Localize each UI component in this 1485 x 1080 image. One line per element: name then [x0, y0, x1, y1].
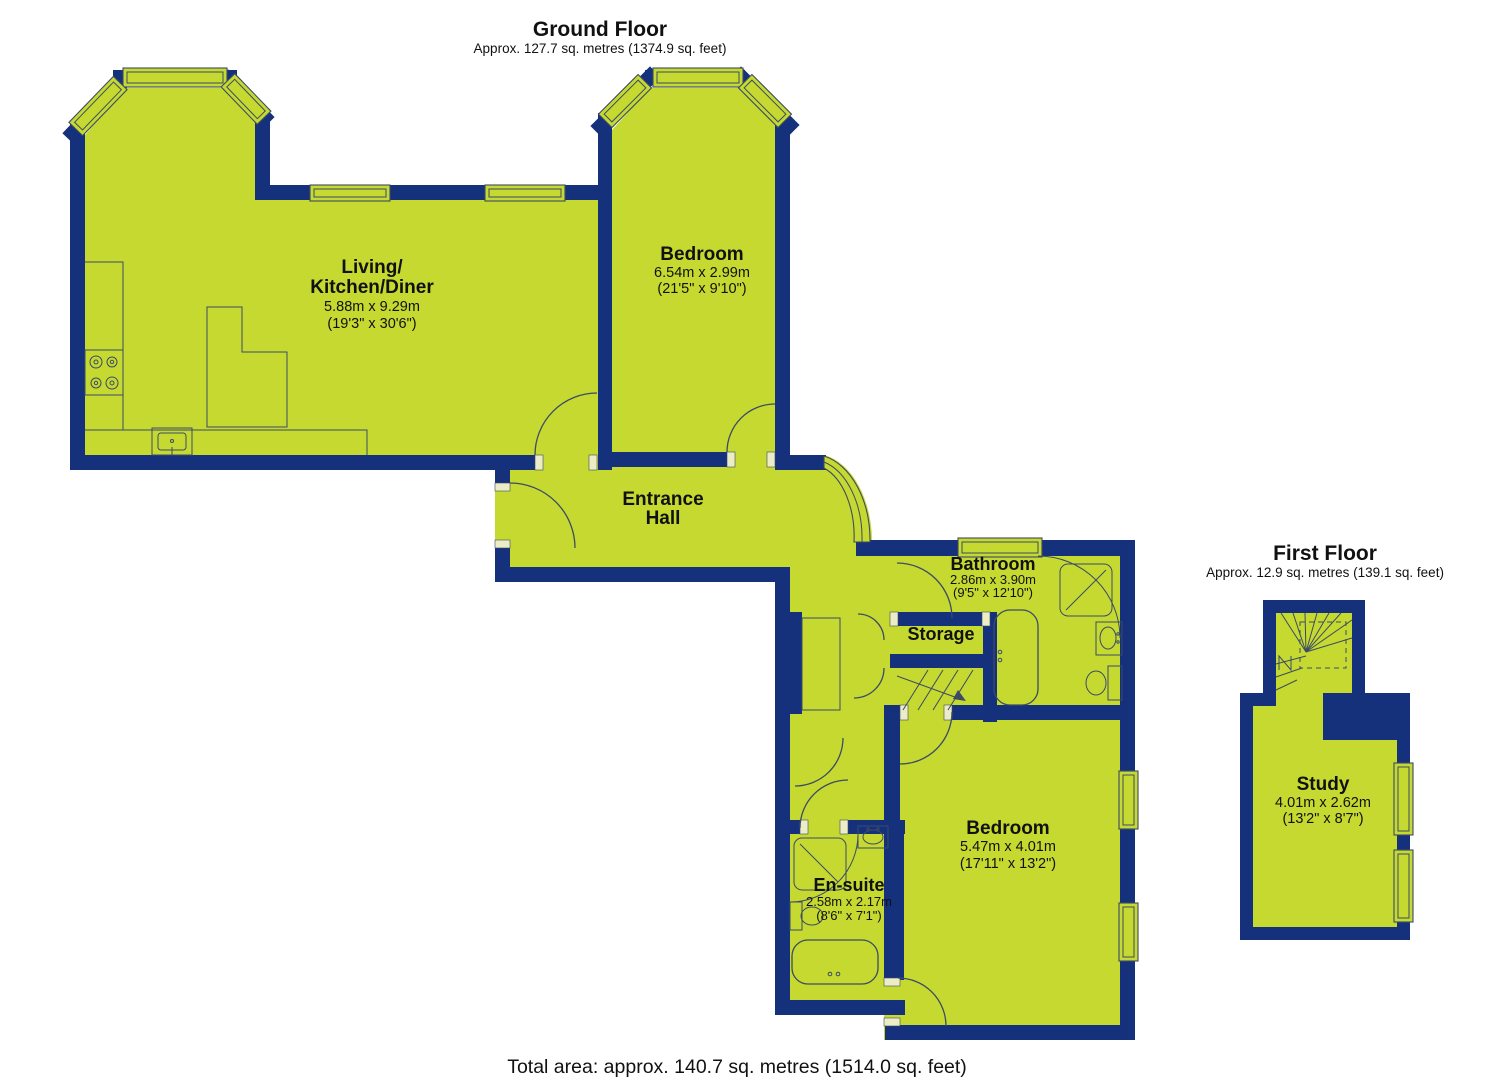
room-dims-ensuite-metric: 2.58m x 2.17m: [806, 894, 892, 909]
window-icon: [1119, 903, 1138, 961]
room-label-bathroom: Bathroom: [951, 554, 1036, 574]
ground-floor-subtitle: Approx. 127.7 sq. metres (1374.9 sq. fee…: [474, 41, 727, 56]
window-icon: [1394, 850, 1413, 922]
room-bedroom-bottom-floor: [884, 705, 1135, 1040]
floorplan-drawing: Ground Floor Approx. 127.7 sq. metres (1…: [0, 0, 1485, 1080]
ground-floor-title: Ground Floor: [533, 18, 667, 41]
room-dims-study-metric: 4.01m x 2.62m: [1275, 795, 1371, 811]
room-label-study: Study: [1297, 774, 1350, 795]
room-dims-bedroom-bottom-imperial: (17'11" x 13'2"): [960, 856, 1056, 872]
room-dims-study-imperial: (13'2" x 8'7"): [1282, 811, 1363, 827]
room-label-living-1: Living/: [341, 257, 403, 278]
room-dims-living-metric: 5.88m x 9.29m: [324, 299, 420, 315]
room-label-bedroom-top: Bedroom: [660, 244, 743, 265]
room-dims-bathroom-imperial: (9'5" x 12'10"): [953, 585, 1033, 600]
window-icon: [123, 68, 227, 87]
room-dims-ensuite-imperial: (8'6" x 7'1"): [816, 908, 882, 923]
room-label-ensuite: En-suite: [813, 875, 884, 895]
window-icon: [1119, 771, 1138, 829]
room-label-bedroom-bottom: Bedroom: [966, 818, 1049, 839]
total-area-label: Total area: approx. 140.7 sq. metres (15…: [507, 1056, 967, 1078]
window-icon: [1394, 763, 1413, 835]
room-label-hall-2: Hall: [646, 508, 681, 529]
room-dims-bedroom-top-imperial: (21'5" x 9'10"): [657, 281, 746, 297]
room-dims-living-imperial: (19'3" x 30'6"): [327, 316, 416, 332]
room-label-living-2: Kitchen/Diner: [310, 277, 434, 298]
floorplan-page: Ground Floor Approx. 127.7 sq. metres (1…: [0, 0, 1485, 1080]
window-icon: [485, 185, 565, 201]
window-icon: [310, 185, 390, 201]
room-entrance-hall-floor: [495, 455, 872, 575]
first-floor-title: First Floor: [1273, 542, 1377, 565]
room-dims-bedroom-top-metric: 6.54m x 2.99m: [654, 265, 750, 281]
first-floor-subtitle: Approx. 12.9 sq. metres (139.1 sq. feet): [1206, 565, 1444, 580]
room-dims-bedroom-bottom-metric: 5.47m x 4.01m: [960, 839, 1056, 855]
room-label-hall-1: Entrance: [622, 489, 703, 510]
window-icon: [653, 68, 743, 87]
room-label-storage: Storage: [907, 624, 974, 644]
floor-areas: [85, 88, 1397, 1040]
